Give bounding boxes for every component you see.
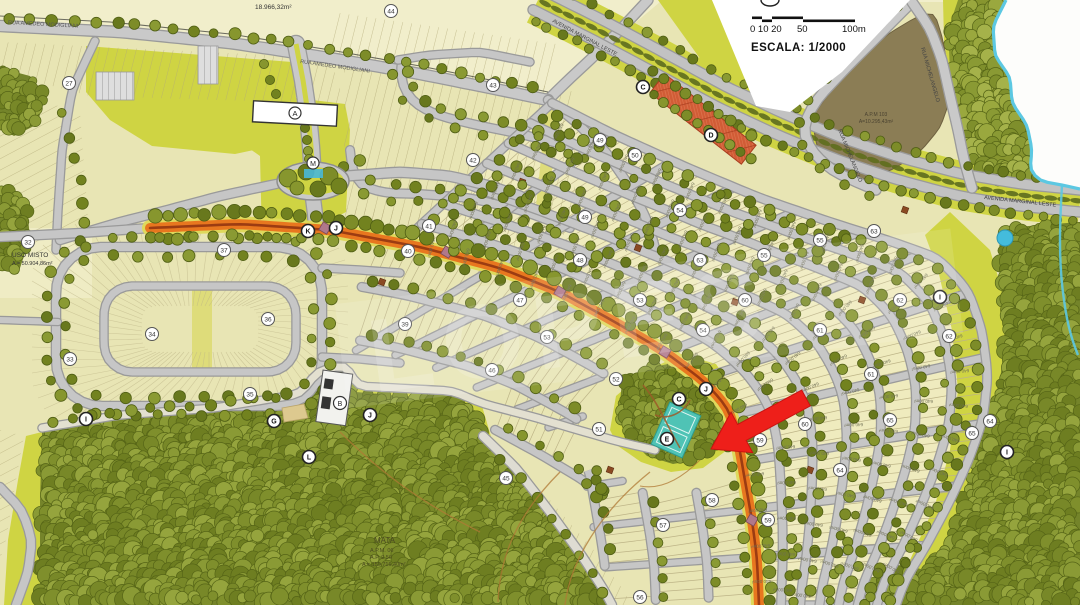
- svg-text:640,00m²: 640,00m²: [913, 398, 933, 404]
- svg-text:E: E: [665, 437, 670, 444]
- svg-text:640,00m²: 640,00m²: [751, 579, 771, 584]
- svg-text:45: 45: [502, 475, 510, 482]
- svg-text:640,00m²: 640,00m²: [776, 480, 796, 485]
- svg-text:50: 50: [631, 152, 639, 159]
- svg-text:41: 41: [425, 223, 433, 230]
- svg-text:65: 65: [968, 430, 976, 437]
- svg-text:G: G: [271, 419, 277, 426]
- svg-text:M: M: [310, 161, 316, 168]
- svg-text:640,00m²: 640,00m²: [776, 516, 796, 521]
- svg-text:L: L: [307, 455, 312, 462]
- svg-text:63: 63: [870, 228, 878, 235]
- svg-text:40: 40: [404, 248, 412, 255]
- svg-text:64: 64: [986, 418, 994, 425]
- svg-text:48: 48: [576, 257, 584, 264]
- svg-text:18.966,32m²: 18.966,32m²: [255, 4, 292, 11]
- svg-text:100m: 100m: [842, 24, 866, 35]
- svg-text:59: 59: [764, 517, 772, 524]
- svg-text:640,00m²: 640,00m²: [750, 543, 770, 549]
- svg-text:49: 49: [581, 214, 589, 221]
- svg-text:36: 36: [264, 316, 272, 323]
- svg-text:A.P. 9,56: A.P. 9,56: [370, 555, 392, 561]
- svg-text:50: 50: [797, 24, 808, 35]
- svg-text:43: 43: [489, 82, 497, 89]
- svg-text:59: 59: [756, 437, 764, 444]
- svg-text:A=10.295,43m²: A=10.295,43m²: [859, 119, 894, 125]
- svg-text:J: J: [368, 413, 372, 420]
- svg-text:B: B: [338, 401, 343, 408]
- svg-text:MATA: MATA: [374, 536, 396, 545]
- svg-text:A = 50.904,86m²: A = 50.904,86m²: [12, 261, 53, 267]
- svg-text:I: I: [1006, 450, 1008, 457]
- svg-text:64: 64: [836, 467, 844, 474]
- svg-text:49: 49: [596, 137, 604, 144]
- svg-text:J: J: [704, 387, 708, 394]
- svg-text:34: 34: [148, 331, 156, 338]
- svg-text:D: D: [708, 133, 713, 140]
- svg-text:27: 27: [65, 80, 73, 87]
- svg-text:37: 37: [220, 247, 228, 254]
- svg-text:0 10 20: 0 10 20: [750, 24, 782, 35]
- svg-text:57: 57: [659, 522, 667, 529]
- svg-text:A.P.M. 06: A.P.M. 06: [370, 548, 393, 554]
- svg-text:640,00m²: 640,00m²: [809, 450, 829, 456]
- svg-text:32: 32: [24, 239, 32, 246]
- svg-text:ESCALA: 1/2000: ESCALA: 1/2000: [751, 42, 846, 54]
- svg-text:51: 51: [595, 426, 603, 433]
- svg-text:USO MISTO: USO MISTO: [12, 252, 48, 259]
- svg-text:640,00m²: 640,00m²: [775, 551, 795, 557]
- svg-text:I: I: [85, 417, 87, 424]
- svg-text:58: 58: [708, 497, 716, 504]
- svg-text:55: 55: [816, 237, 824, 244]
- svg-text:A = 159.716,40m²: A = 159.716,40m²: [362, 562, 406, 568]
- svg-text:J: J: [334, 226, 338, 233]
- svg-text:35: 35: [246, 391, 254, 398]
- svg-text:33: 33: [66, 356, 74, 363]
- svg-text:A.P.M 103: A.P.M 103: [865, 112, 888, 118]
- svg-text:54: 54: [676, 207, 684, 214]
- svg-text:K: K: [305, 229, 310, 236]
- svg-text:C: C: [640, 85, 645, 92]
- svg-text:44: 44: [387, 8, 395, 15]
- svg-text:C: C: [676, 397, 681, 404]
- svg-text:640,00m²: 640,00m²: [843, 422, 863, 428]
- svg-text:61: 61: [867, 371, 875, 378]
- svg-text:A: A: [292, 109, 297, 118]
- svg-text:65: 65: [886, 417, 894, 424]
- svg-text:42: 42: [469, 157, 477, 164]
- svg-text:60: 60: [801, 421, 809, 428]
- svg-text:56: 56: [636, 594, 644, 601]
